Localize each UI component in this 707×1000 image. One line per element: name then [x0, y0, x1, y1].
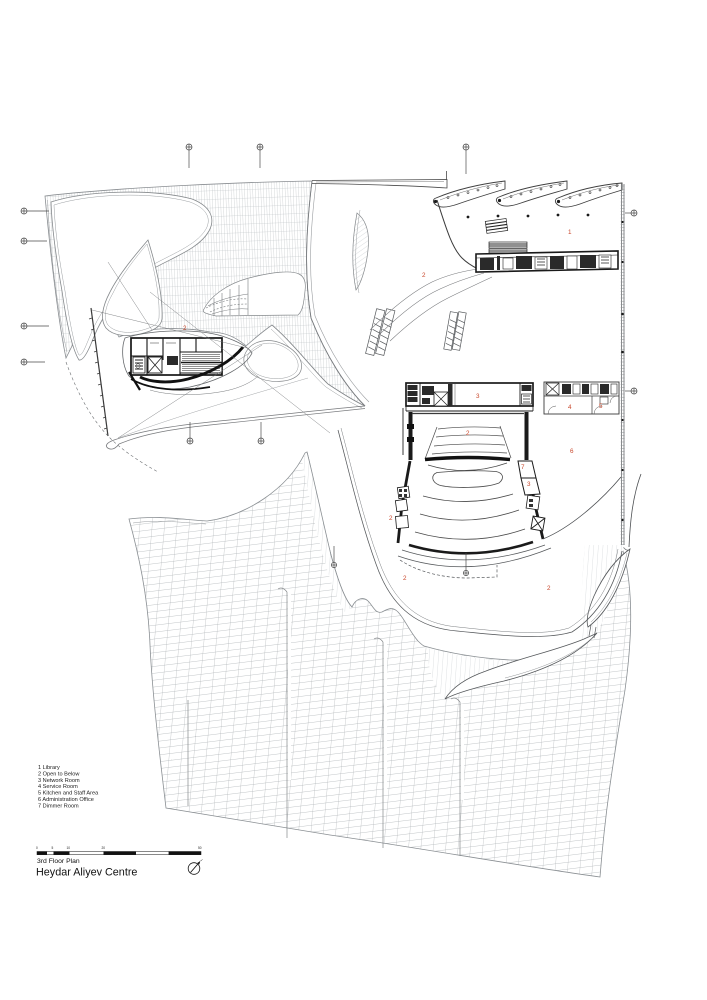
svg-text:2: 2 — [403, 575, 407, 582]
svg-text:2: 2 — [389, 515, 393, 522]
svg-text:4 Service Room: 4 Service Room — [38, 784, 78, 790]
svg-text:6: 6 — [570, 448, 574, 455]
svg-text:3rd Floor Plan: 3rd Floor Plan — [37, 858, 80, 865]
svg-text:1: 1 — [568, 229, 572, 236]
svg-text:2: 2 — [422, 272, 426, 279]
svg-text:0: 0 — [36, 846, 38, 850]
svg-text:4: 4 — [568, 404, 572, 411]
svg-text:5 Kitchen and Staff Area: 5 Kitchen and Staff Area — [38, 791, 99, 797]
svg-text:Heydar Aliyev Centre: Heydar Aliyev Centre — [36, 867, 137, 879]
svg-text:5: 5 — [52, 846, 54, 850]
svg-text:1 Library: 1 Library — [38, 765, 60, 771]
svg-text:2: 2 — [466, 430, 470, 437]
svg-text:5: 5 — [599, 403, 603, 410]
svg-text:2: 2 — [183, 325, 187, 332]
svg-text:7 Dimmer Room: 7 Dimmer Room — [38, 803, 79, 809]
svg-text:10: 10 — [67, 846, 71, 850]
svg-text:50: 50 — [198, 846, 202, 850]
svg-text:2: 2 — [547, 585, 551, 592]
svg-text:20: 20 — [102, 846, 106, 850]
svg-text:2 Open to Below: 2 Open to Below — [38, 771, 80, 777]
svg-text:3: 3 — [476, 393, 480, 400]
svg-text:6 Administration Office: 6 Administration Office — [38, 797, 94, 803]
svg-text:3 Network Room: 3 Network Room — [38, 778, 80, 784]
svg-text:7: 7 — [521, 464, 525, 471]
svg-text:3: 3 — [527, 481, 531, 488]
